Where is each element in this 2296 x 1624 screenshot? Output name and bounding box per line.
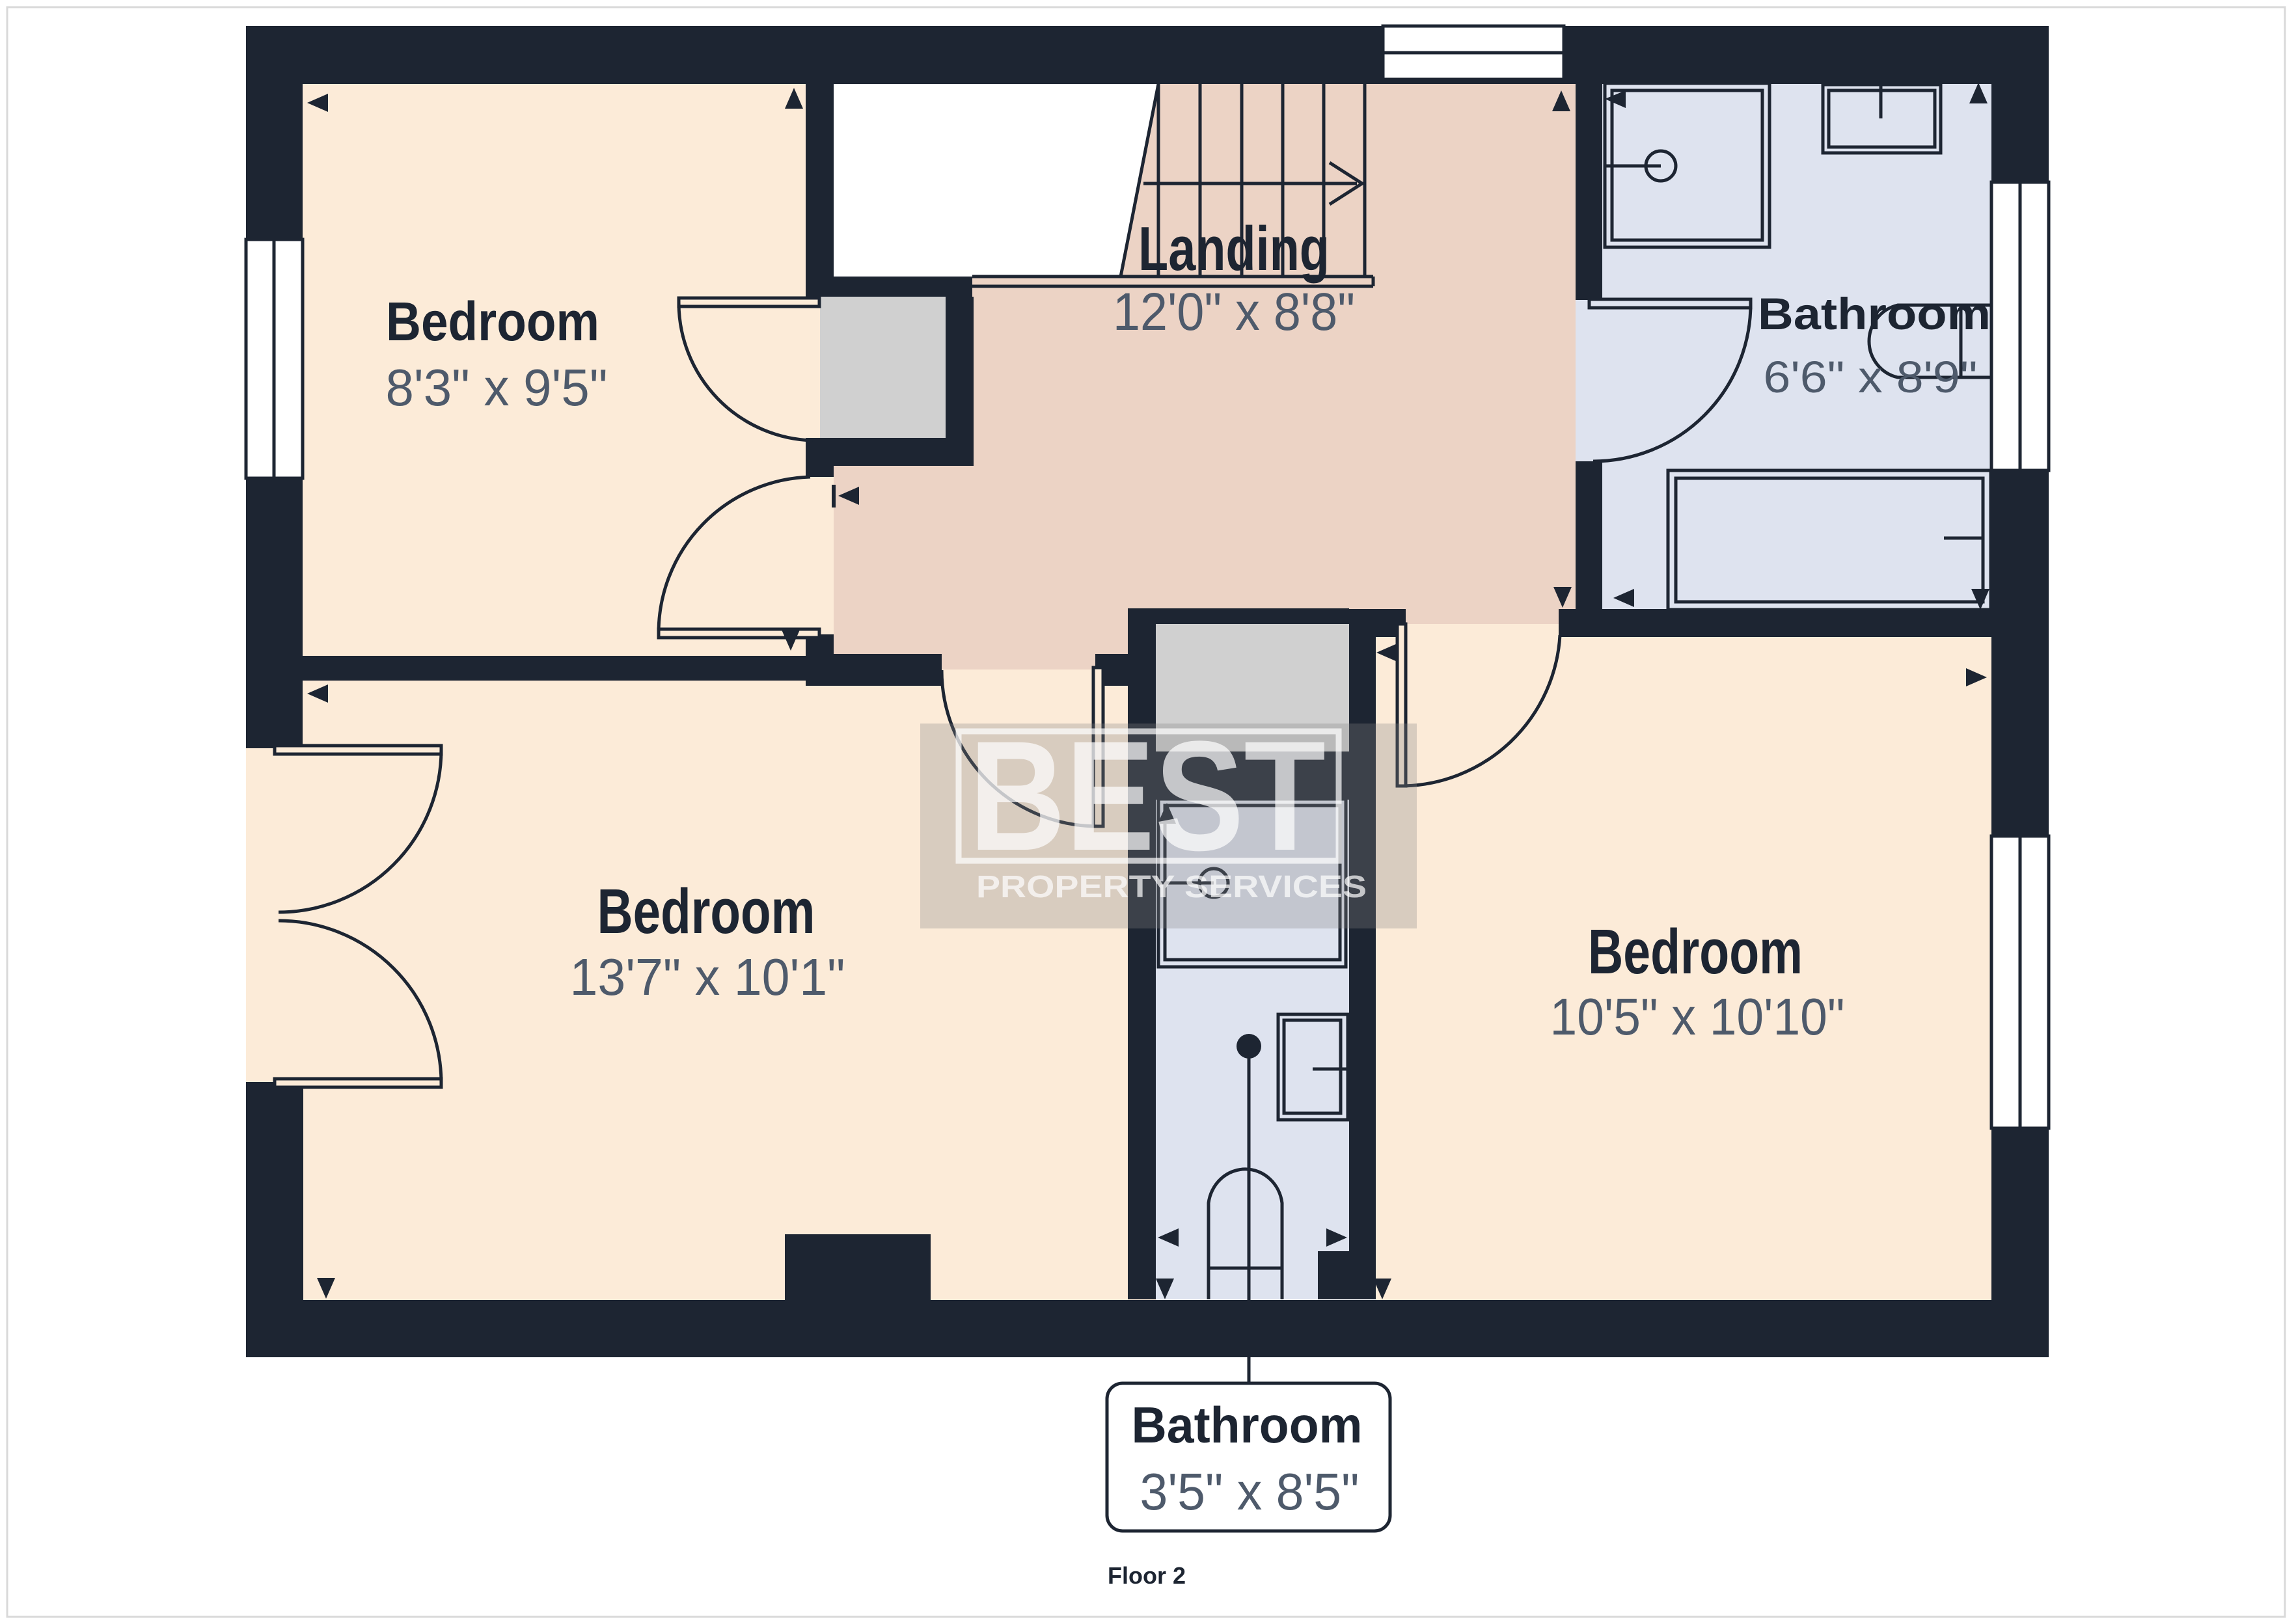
svg-text:Bedroom: Bedroom xyxy=(386,291,599,352)
svg-text:BEST: BEST xyxy=(969,709,1326,883)
svg-text:PROPERTY SERVICES: PROPERTY SERVICES xyxy=(976,870,1367,904)
svg-text:10'5" x 10'10": 10'5" x 10'10" xyxy=(1550,988,1845,1046)
svg-text:13'7" x 10'1": 13'7" x 10'1" xyxy=(570,948,845,1006)
svg-text:3'5" x 8'5": 3'5" x 8'5" xyxy=(1140,1463,1360,1521)
svg-text:8'3" x 9'5": 8'3" x 9'5" xyxy=(386,359,608,416)
svg-text:Landing: Landing xyxy=(1138,214,1330,284)
svg-text:12'0" x 8'8": 12'0" x 8'8" xyxy=(1113,282,1355,342)
svg-text:Bedroom: Bedroom xyxy=(597,876,815,947)
svg-text:6'6" x 8'9": 6'6" x 8'9" xyxy=(1764,352,1978,402)
svg-text:Bedroom: Bedroom xyxy=(1588,916,1803,987)
svg-text:Bathroom: Bathroom xyxy=(1132,1396,1363,1454)
svg-text:Floor 2: Floor 2 xyxy=(1108,1562,1186,1589)
svg-text:Bathroom: Bathroom xyxy=(1758,289,1991,339)
